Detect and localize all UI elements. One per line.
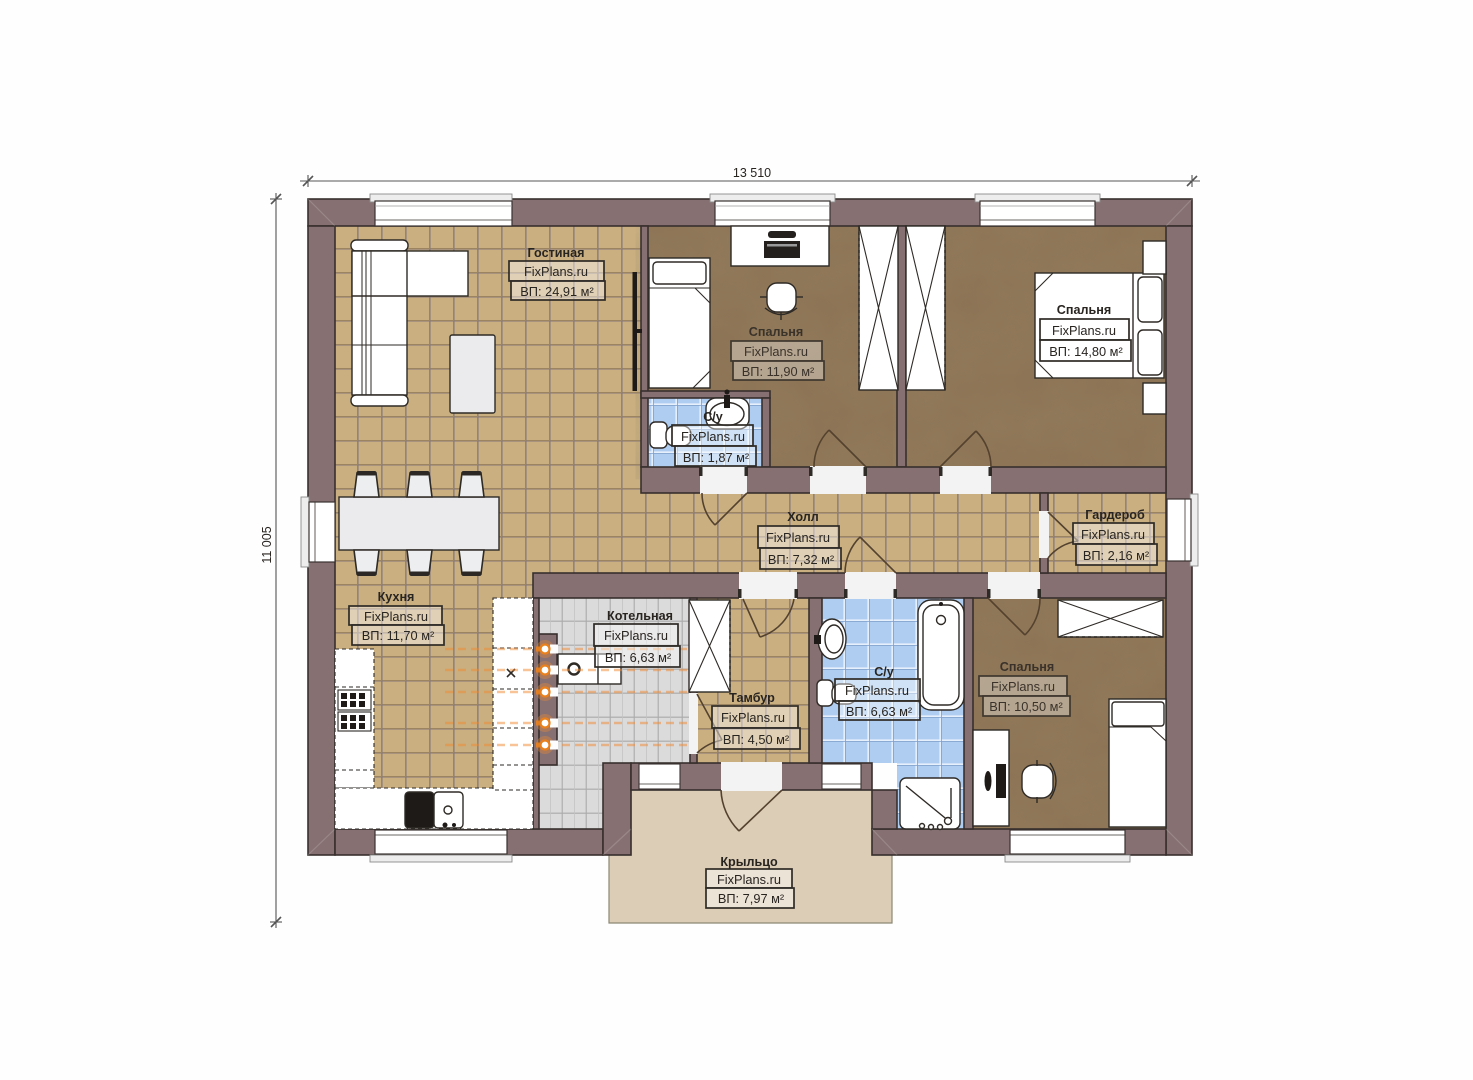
svg-text:С/у: С/у bbox=[703, 410, 723, 424]
svg-text:FixPlans.ru: FixPlans.ru bbox=[766, 530, 830, 545]
svg-text:ВП: 1,87 м²: ВП: 1,87 м² bbox=[683, 450, 750, 465]
svg-text:С/у: С/у bbox=[874, 665, 894, 679]
svg-text:FixPlans.ru: FixPlans.ru bbox=[991, 679, 1055, 694]
svg-text:FixPlans.ru: FixPlans.ru bbox=[845, 683, 909, 698]
svg-text:Гостиная: Гостиная bbox=[528, 246, 585, 260]
svg-text:ВП: 7,32 м²: ВП: 7,32 м² bbox=[768, 552, 835, 567]
svg-text:ВП: 24,91 м²: ВП: 24,91 м² bbox=[520, 284, 594, 299]
svg-text:11 005: 11 005 bbox=[260, 526, 274, 563]
svg-text:Спальня: Спальня bbox=[1057, 303, 1111, 317]
svg-text:ВП: 6,63 м²: ВП: 6,63 м² bbox=[846, 704, 913, 719]
svg-text:Спальня: Спальня bbox=[749, 325, 803, 339]
svg-text:FixPlans.ru: FixPlans.ru bbox=[681, 429, 745, 444]
svg-text:FixPlans.ru: FixPlans.ru bbox=[604, 628, 668, 643]
svg-text:Гардероб: Гардероб bbox=[1085, 508, 1145, 522]
svg-text:FixPlans.ru: FixPlans.ru bbox=[364, 609, 428, 624]
svg-text:13 510: 13 510 bbox=[733, 166, 771, 180]
svg-text:ВП: 2,16 м²: ВП: 2,16 м² bbox=[1083, 548, 1150, 563]
svg-text:Кухня: Кухня bbox=[378, 590, 415, 604]
svg-text:ВП: 14,80 м²: ВП: 14,80 м² bbox=[1049, 344, 1123, 359]
svg-text:ВП: 7,97 м²: ВП: 7,97 м² bbox=[718, 891, 785, 906]
svg-text:ВП: 4,50 м²: ВП: 4,50 м² bbox=[723, 732, 790, 747]
svg-text:ВП: 11,90 м²: ВП: 11,90 м² bbox=[742, 364, 815, 379]
svg-text:FixPlans.ru: FixPlans.ru bbox=[1052, 323, 1116, 338]
svg-text:FixPlans.ru: FixPlans.ru bbox=[721, 710, 785, 725]
svg-text:FixPlans.ru: FixPlans.ru bbox=[1081, 527, 1145, 542]
svg-text:Спальня: Спальня bbox=[1000, 660, 1054, 674]
svg-text:Крыльцо: Крыльцо bbox=[720, 855, 778, 869]
svg-text:FixPlans.ru: FixPlans.ru bbox=[524, 264, 588, 279]
svg-text:Котельная: Котельная bbox=[607, 609, 673, 623]
svg-text:ВП: 10,50 м²: ВП: 10,50 м² bbox=[989, 699, 1063, 714]
svg-text:ВП: 6,63 м²: ВП: 6,63 м² bbox=[605, 650, 672, 665]
svg-text:FixPlans.ru: FixPlans.ru bbox=[717, 872, 781, 887]
svg-text:Тамбур: Тамбур bbox=[729, 691, 775, 705]
svg-text:Холл: Холл bbox=[787, 510, 819, 524]
svg-text:FixPlans.ru: FixPlans.ru bbox=[744, 344, 808, 359]
svg-text:ВП: 11,70 м²: ВП: 11,70 м² bbox=[362, 628, 435, 643]
